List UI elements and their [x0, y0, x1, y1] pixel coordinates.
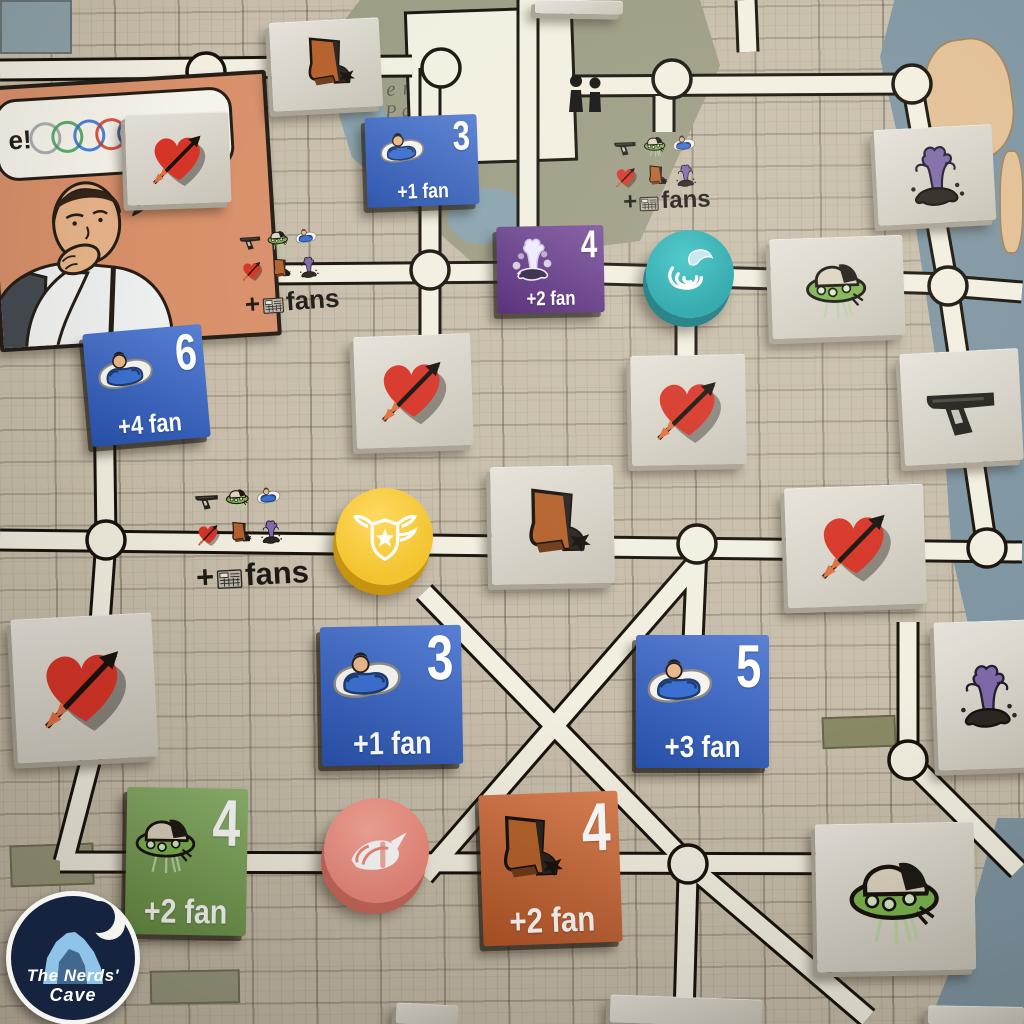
reward-number: 5	[736, 632, 761, 701]
boot-mini-icon	[225, 519, 258, 553]
reward-number: 3	[426, 622, 454, 695]
reward-number: 4	[212, 786, 241, 862]
tile-edge-bottom-center	[610, 994, 763, 1024]
fans-tile-mid[interactable]: +fans	[184, 474, 317, 601]
boot-tile-top-left[interactable]	[269, 17, 384, 112]
reward-fan-text: +2 fan	[134, 892, 236, 933]
reward-fan-text: +2 fan	[493, 899, 611, 943]
ufo-tile-bottom-right[interactable]	[815, 822, 977, 973]
hero-mini-icon	[293, 224, 323, 256]
purple-reward-4[interactable]: 4+2 fan	[496, 225, 605, 314]
two-figures-icon	[564, 74, 608, 112]
reward-fan-text: +1 fan	[376, 179, 471, 206]
zombie-tile-top-right[interactable]	[874, 124, 997, 226]
teal-token[interactable]	[646, 230, 734, 318]
heart-tile-mid-left[interactable]	[353, 333, 474, 449]
gun-mini-icon	[237, 228, 267, 260]
calculator-icon	[260, 292, 285, 314]
fans-tile-top[interactable]: +fans	[604, 125, 727, 221]
gun-mini-icon	[192, 486, 225, 520]
heart-tile-mid-right[interactable]	[630, 354, 747, 466]
plus-sign: +	[195, 559, 215, 596]
reward-fan-text: +2 fan	[506, 287, 596, 312]
gun-tile-right[interactable]	[899, 348, 1024, 466]
plus-sign: +	[623, 188, 638, 216]
nerds-cave-logo: The Nerds' Cave	[6, 891, 140, 1024]
fans-label: fans	[244, 554, 310, 593]
reward-number: 4	[580, 223, 597, 268]
green-reward-4[interactable]: 4+2 fan	[125, 787, 249, 936]
fans-label: fans	[661, 186, 711, 216]
tile-edge-bottom-right	[928, 1005, 1024, 1024]
zombie-tile-right[interactable]	[933, 619, 1024, 770]
blue-reward-3-mid[interactable]: 3+1 fan	[320, 625, 463, 766]
game-board: Central Park e!	[0, 0, 1024, 1024]
ufo-mini-icon	[223, 484, 256, 518]
reward-fan-text: +1 fan	[333, 724, 452, 763]
zombie-mini-icon	[256, 517, 289, 551]
hero-mini-icon	[671, 130, 702, 162]
hero-mini-icon	[254, 482, 287, 516]
ufo-mini-icon	[641, 131, 672, 163]
tile-edge-bottom-left	[395, 1002, 458, 1024]
heart-tile-right[interactable]	[784, 484, 927, 609]
calculator-icon	[215, 564, 245, 589]
calculator-icon	[638, 193, 661, 212]
reward-number: 6	[172, 322, 199, 382]
tile-edge-top	[535, 0, 623, 15]
reward-fan-text: +3 fan	[647, 729, 759, 765]
fans-tile-upper-left[interactable]: +fans	[230, 217, 351, 325]
heart-tile-top-left[interactable]	[124, 111, 231, 206]
fans-label: fans	[285, 283, 341, 318]
blue-reward-5[interactable]: 5+3 fan	[636, 635, 769, 768]
zombie-mini-icon	[295, 253, 325, 285]
boot-tile-center[interactable]	[490, 465, 615, 585]
ufo-mini-icon	[265, 226, 295, 258]
blue-reward-6[interactable]: 6+4 fan	[82, 324, 210, 447]
heart-mini-icon	[239, 257, 269, 289]
blue-reward-3-top[interactable]: 3+1 fan	[364, 114, 479, 208]
yellow-token[interactable]	[336, 488, 433, 585]
orange-reward-4[interactable]: 4+2 fan	[478, 791, 622, 947]
reward-number: 4	[580, 788, 611, 867]
boot-mini-icon	[267, 255, 297, 287]
gun-mini-icon	[612, 132, 643, 164]
heart-mini-icon	[194, 521, 227, 555]
ufo-tile-right[interactable]	[769, 235, 905, 340]
reward-fan-text: +4 fan	[99, 404, 201, 444]
reward-number: 3	[452, 113, 471, 161]
plus-sign: +	[244, 288, 261, 320]
logo-text: The Nerds' Cave	[11, 966, 135, 1006]
salmon-token[interactable]	[324, 798, 429, 903]
heart-tile-left[interactable]	[10, 612, 158, 763]
